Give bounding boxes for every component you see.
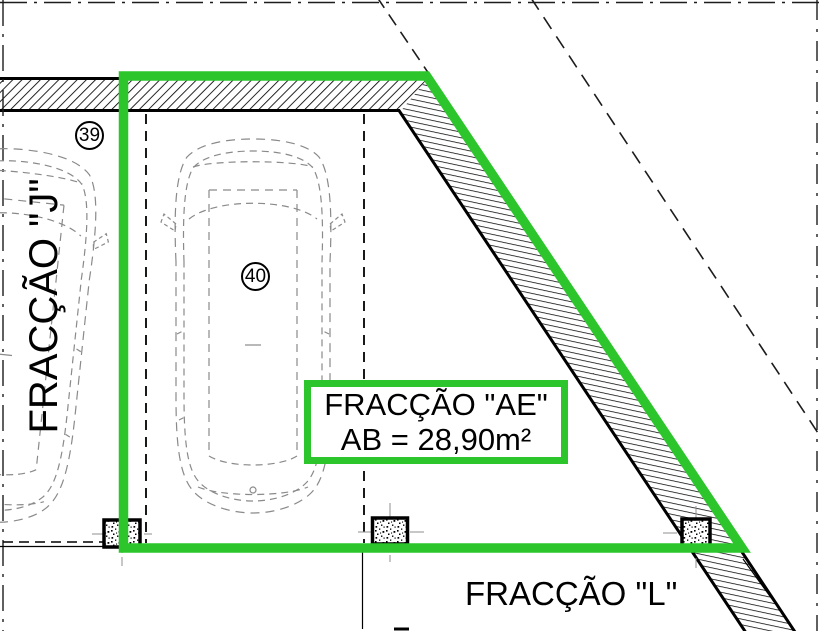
space-39-bubble: 39 [75, 121, 104, 150]
space-39-number: 39 [79, 126, 100, 145]
space-40-number: 40 [245, 267, 266, 286]
fraction-ae-area-value: AB = 28,90m² [341, 422, 531, 457]
fraction-l-label: FRACÇÃO "L" [465, 575, 677, 613]
fraction-ae-title: FRACÇÃO "AE" [324, 387, 548, 422]
fraction-j-label: FRACÇÃO "J" [22, 176, 68, 436]
space-40-bubble: 40 [241, 262, 270, 291]
plan-labels: 39 40 FRACÇÃO "J" FRACÇÃO "AE" AB = 28,9… [0, 0, 822, 631]
floor-plan-canvas: 39 40 FRACÇÃO "J" FRACÇÃO "AE" AB = 28,9… [0, 0, 822, 631]
fraction-ae-callout-box: FRACÇÃO "AE" AB = 28,90m² [304, 380, 568, 464]
